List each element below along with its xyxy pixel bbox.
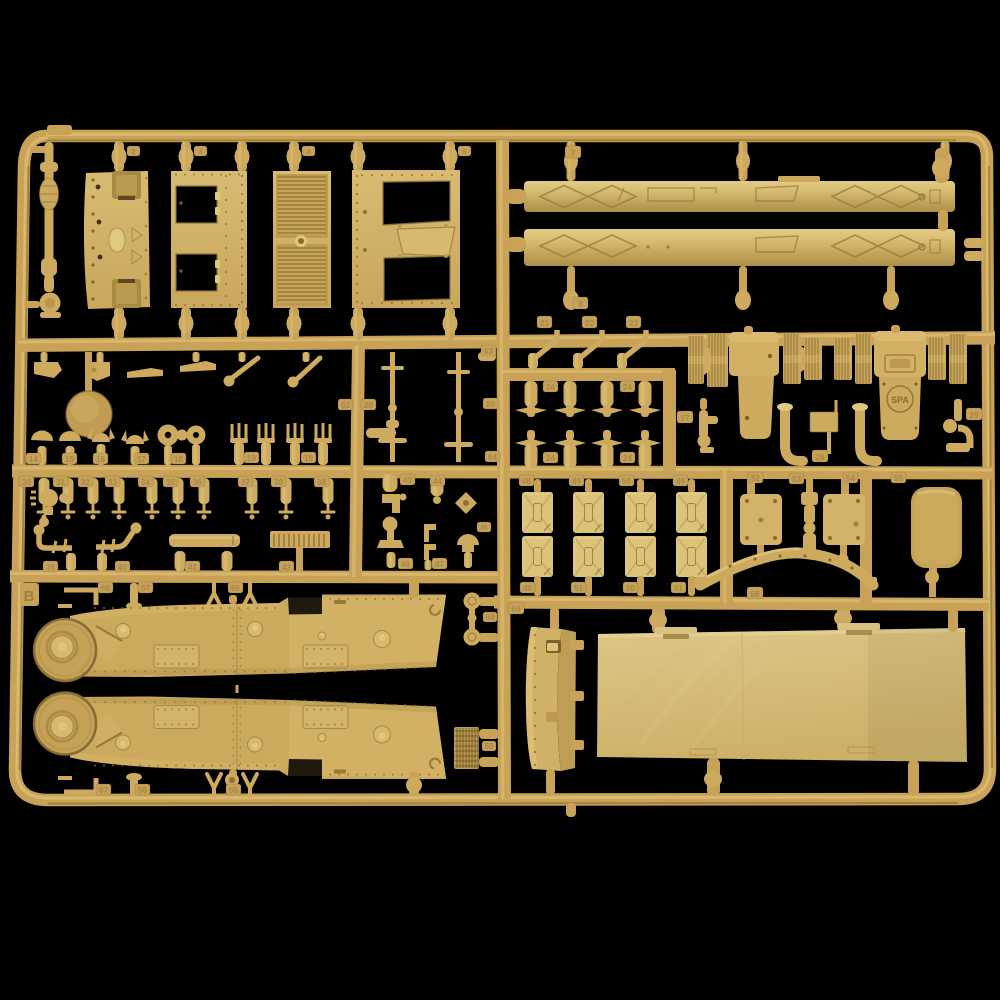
svg-text:50: 50 (626, 584, 635, 593)
svg-text:60: 60 (512, 605, 521, 614)
svg-text:66: 66 (231, 584, 240, 593)
svg-text:67: 67 (99, 786, 108, 795)
svg-text:54: 54 (846, 474, 855, 483)
svg-text:43: 43 (403, 476, 412, 485)
svg-text:64: 64 (488, 453, 497, 462)
svg-text:46: 46 (523, 584, 532, 593)
svg-text:42: 42 (282, 563, 291, 572)
svg-text:41: 41 (188, 563, 197, 572)
svg-text:63: 63 (484, 347, 493, 356)
svg-text:53: 53 (792, 475, 801, 484)
svg-text:51: 51 (574, 584, 583, 593)
svg-text:28: 28 (816, 453, 825, 462)
svg-text:20: 20 (486, 400, 495, 409)
svg-text:17: 17 (137, 455, 146, 464)
svg-text:23: 23 (629, 319, 638, 328)
svg-text:22: 22 (585, 319, 594, 328)
svg-text:18: 18 (174, 455, 183, 464)
svg-text:16: 16 (96, 455, 105, 464)
svg-text:15: 15 (65, 455, 74, 464)
svg-text:SPA: SPA (891, 395, 909, 405)
svg-text:24: 24 (623, 454, 632, 463)
svg-text:7: 7 (571, 149, 576, 158)
svg-text:31: 31 (56, 478, 65, 487)
svg-text:34: 34 (141, 478, 150, 487)
svg-text:62: 62 (341, 401, 350, 410)
svg-text:51: 51 (674, 584, 683, 593)
svg-text:49: 49 (676, 477, 685, 486)
svg-text:20: 20 (364, 401, 373, 410)
svg-text:37: 37 (241, 478, 250, 487)
svg-text:38: 38 (317, 478, 326, 487)
svg-text:58: 58 (138, 786, 147, 795)
svg-text:69: 69 (486, 613, 495, 622)
svg-text:50: 50 (622, 477, 631, 486)
svg-text:66: 66 (229, 786, 238, 795)
svg-text:B: B (24, 588, 35, 605)
svg-text:55: 55 (894, 474, 903, 483)
svg-text:58: 58 (485, 742, 494, 751)
svg-text:8: 8 (578, 300, 583, 309)
svg-text:24: 24 (546, 383, 555, 392)
svg-text:40: 40 (118, 563, 127, 572)
svg-text:29: 29 (970, 411, 979, 420)
svg-text:2: 2 (132, 149, 136, 156)
svg-text:4: 4 (307, 149, 311, 156)
svg-text:33: 33 (108, 478, 117, 487)
svg-text:5: 5 (463, 149, 467, 156)
svg-text:39: 39 (46, 563, 55, 572)
svg-text:32: 32 (81, 478, 90, 487)
svg-text:19: 19 (247, 454, 256, 463)
svg-text:21: 21 (540, 319, 549, 328)
svg-text:45: 45 (480, 525, 488, 532)
svg-text:24: 24 (546, 454, 555, 463)
svg-text:44: 44 (433, 477, 442, 486)
svg-text:46: 46 (401, 560, 410, 569)
svg-text:68: 68 (101, 584, 110, 593)
svg-text:36: 36 (193, 478, 202, 487)
svg-text:24: 24 (623, 383, 632, 392)
svg-text:49: 49 (572, 477, 581, 486)
svg-text:3: 3 (199, 149, 203, 156)
svg-text:35: 35 (166, 478, 175, 487)
svg-text:52: 52 (751, 474, 760, 483)
svg-text:48: 48 (522, 477, 531, 486)
svg-text:38: 38 (274, 478, 283, 487)
svg-text:30: 30 (22, 478, 31, 487)
svg-text:58: 58 (751, 590, 760, 599)
svg-text:19: 19 (304, 454, 313, 463)
svg-text:14: 14 (29, 455, 38, 464)
svg-text:47: 47 (435, 560, 444, 569)
svg-text:27: 27 (681, 414, 690, 423)
svg-text:57: 57 (141, 584, 150, 593)
